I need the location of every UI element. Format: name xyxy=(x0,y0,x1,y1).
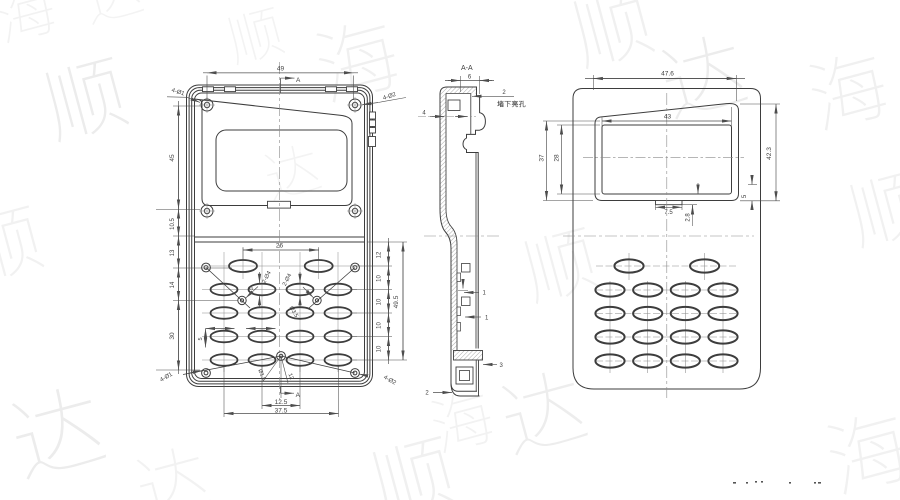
svg-text:43: 43 xyxy=(664,113,672,120)
svg-text:42.3: 42.3 xyxy=(766,147,773,160)
svg-text:12: 12 xyxy=(377,251,383,258)
svg-text:37: 37 xyxy=(539,154,546,162)
svg-text:28: 28 xyxy=(554,154,561,162)
svg-text:47.6: 47.6 xyxy=(661,71,674,78)
svg-text:45: 45 xyxy=(169,154,176,162)
svg-text:7.5: 7.5 xyxy=(664,210,673,216)
svg-text:49.5: 49.5 xyxy=(393,295,400,308)
svg-text:13: 13 xyxy=(170,249,176,256)
svg-text:10: 10 xyxy=(377,275,383,282)
svg-text:2.8: 2.8 xyxy=(686,213,692,222)
svg-text:49: 49 xyxy=(277,66,285,73)
svg-text:10: 10 xyxy=(377,322,383,329)
svg-text:26: 26 xyxy=(276,243,284,250)
svg-text:14: 14 xyxy=(170,281,176,288)
svg-text:12.5: 12.5 xyxy=(275,399,288,406)
svg-text:A-A: A-A xyxy=(461,65,473,72)
svg-text:10: 10 xyxy=(377,345,383,352)
svg-text:A: A xyxy=(296,77,301,84)
svg-text:5: 5 xyxy=(198,337,204,340)
svg-text:10.5: 10.5 xyxy=(170,218,176,230)
svg-text:37.5: 37.5 xyxy=(275,407,288,414)
svg-text:10: 10 xyxy=(377,298,383,305)
svg-text:30: 30 xyxy=(169,332,176,340)
